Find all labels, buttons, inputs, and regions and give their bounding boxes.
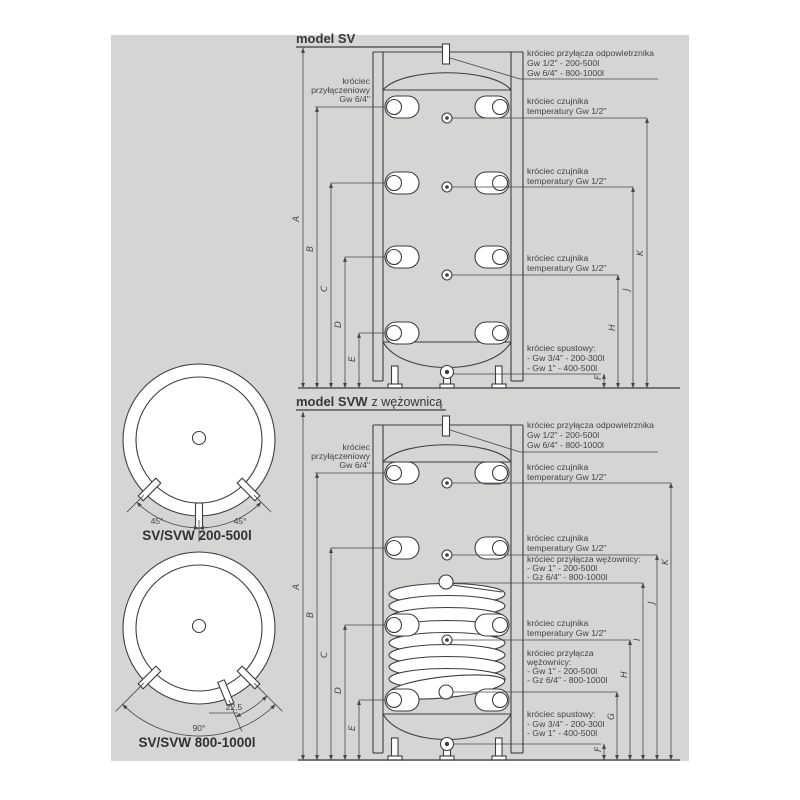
sv-port-right-2 [475, 172, 509, 194]
sv-sensor-port-2 [442, 182, 452, 192]
sv-port-left-2 [385, 172, 419, 194]
sv-dim-H: H [608, 324, 618, 331]
svg-text:Gw 1/2" - 200-500l: Gw 1/2" - 200-500l [527, 430, 599, 440]
svw-sensor-port-1 [442, 478, 452, 488]
svw-sensor-port-3 [442, 635, 452, 645]
svw-dim-G: G [607, 713, 617, 720]
sv-dim-F: F [594, 374, 604, 380]
sv-sensor3-label: króciec czujnika [527, 253, 588, 263]
sv-sensor-port-3 [442, 270, 452, 280]
svg-text:- Gz 6/4" - 800-1000l: - Gz 6/4" - 800-1000l [527, 572, 607, 582]
sv-title: model SV [296, 31, 356, 46]
svw-port-right-1 [475, 462, 509, 484]
svw-dim-E: E [348, 725, 358, 731]
svg-text:- Gw 1" - 400-500l: - Gw 1" - 400-500l [527, 363, 597, 373]
sv-port-left-1 [385, 96, 419, 118]
svw-sensor1-label: króciec czujnika [527, 462, 588, 472]
sv-drain-label: króciec spustowy: [527, 343, 596, 353]
svg-text:Gw 6/4": Gw 6/4" [339, 460, 370, 470]
large-view-angle-small: 22,5 [226, 702, 243, 712]
large-view-center-port [193, 620, 206, 633]
svg-text:temperatury Gw 1/2": temperatury Gw 1/2" [527, 106, 606, 116]
svg-text:temperatury Gw 1/2": temperatury Gw 1/2" [527, 472, 606, 482]
svw-vent-label: króciec przyłącza odpowietrznika [527, 420, 654, 430]
svg-text:- Gz 6/4" - 800-1000l: - Gz 6/4" - 800-1000l [527, 675, 607, 685]
sv-port-right-4 [475, 322, 509, 344]
buffer-tank-diagram: model SV [0, 0, 800, 800]
svw-coil-top-port [439, 575, 453, 589]
sv-dim-B: B [306, 246, 316, 252]
svg-text:Gw 6/4" - 800-1000l: Gw 6/4" - 800-1000l [527, 68, 604, 78]
svw-port-right-3 [475, 614, 509, 636]
svw-port-left-3 [385, 614, 419, 636]
svw-dim-C: C [320, 651, 330, 658]
large-view-title: SV/SVW 800-1000l [138, 735, 255, 750]
svw-coil-bottom-port [439, 685, 453, 699]
sv-sensor1-label: króciec czujnika [527, 96, 588, 106]
svw-drain-port [441, 738, 454, 751]
sv-port-right-3 [475, 246, 509, 268]
small-view-angle-left: 45° [151, 516, 164, 526]
svw-sensor3-label: króciec czujnika [527, 618, 588, 628]
svg-text:Gw 6/4": Gw 6/4" [339, 94, 370, 104]
svg-text:Gw 6/4" - 800-1000l: Gw 6/4" - 800-1000l [527, 440, 604, 450]
sv-vent-label: króciec przyłącza odpowietrznika [527, 48, 654, 58]
svw-dim-I: I [633, 638, 643, 641]
svw-dim-H: H [620, 671, 630, 678]
sv-dim-D: D [334, 321, 344, 328]
svg-text:Gw 1/2" - 200-500l: Gw 1/2" - 200-500l [527, 58, 599, 68]
svw-drain-label: króciec spustowy: [527, 709, 596, 719]
sv-port-right-1 [475, 96, 509, 118]
svw-port-left-1 [385, 462, 419, 484]
svw-sensor-port-2 [442, 550, 452, 560]
svg-text:temperatury Gw 1/2": temperatury Gw 1/2" [527, 543, 606, 553]
svw-sensor2-label: króciec czujnika [527, 533, 588, 543]
sv-dim-C: C [320, 285, 330, 292]
svg-text:temperatury Gw 1/2": temperatury Gw 1/2" [527, 176, 606, 186]
svw-port-left-2 [385, 537, 419, 559]
svg-text:temperatury Gw 1/2": temperatury Gw 1/2" [527, 263, 606, 273]
svw-port-left-4 [385, 689, 419, 711]
sv-sensor2-label: króciec czujnika [527, 166, 588, 176]
svw-port-right-2 [475, 537, 509, 559]
svg-text:temperatury Gw 1/2": temperatury Gw 1/2" [527, 628, 606, 638]
svw-dim-D: D [334, 687, 344, 694]
small-view-center-port [193, 432, 206, 445]
sv-port-left-3 [385, 246, 419, 268]
svg-text:- Gw 3/4" - 200-300l: - Gw 3/4" - 200-300l [527, 353, 605, 363]
sv-air-vent-stub [443, 44, 450, 64]
technical-drawing-page: model SV [0, 0, 800, 800]
sv-port-left-4 [385, 322, 419, 344]
sv-dim-A: A [292, 216, 302, 223]
sv-dim-E: E [348, 356, 358, 362]
svg-text:- Gw 1" - 400-500l: - Gw 1" - 400-500l [527, 728, 597, 738]
svw-dim-B: B [306, 612, 316, 618]
sv-sensor-port-1 [442, 113, 452, 123]
small-view-title: SV/SVW 200-500l [142, 528, 252, 543]
sv-drain-port [441, 366, 454, 379]
large-view-angle-big: 90° [193, 723, 206, 733]
svw-dim-F: F [594, 746, 604, 752]
svw-dim-A: A [292, 584, 302, 591]
small-view-angle-right: 45° [234, 516, 247, 526]
svw-air-vent-stub [443, 416, 450, 436]
